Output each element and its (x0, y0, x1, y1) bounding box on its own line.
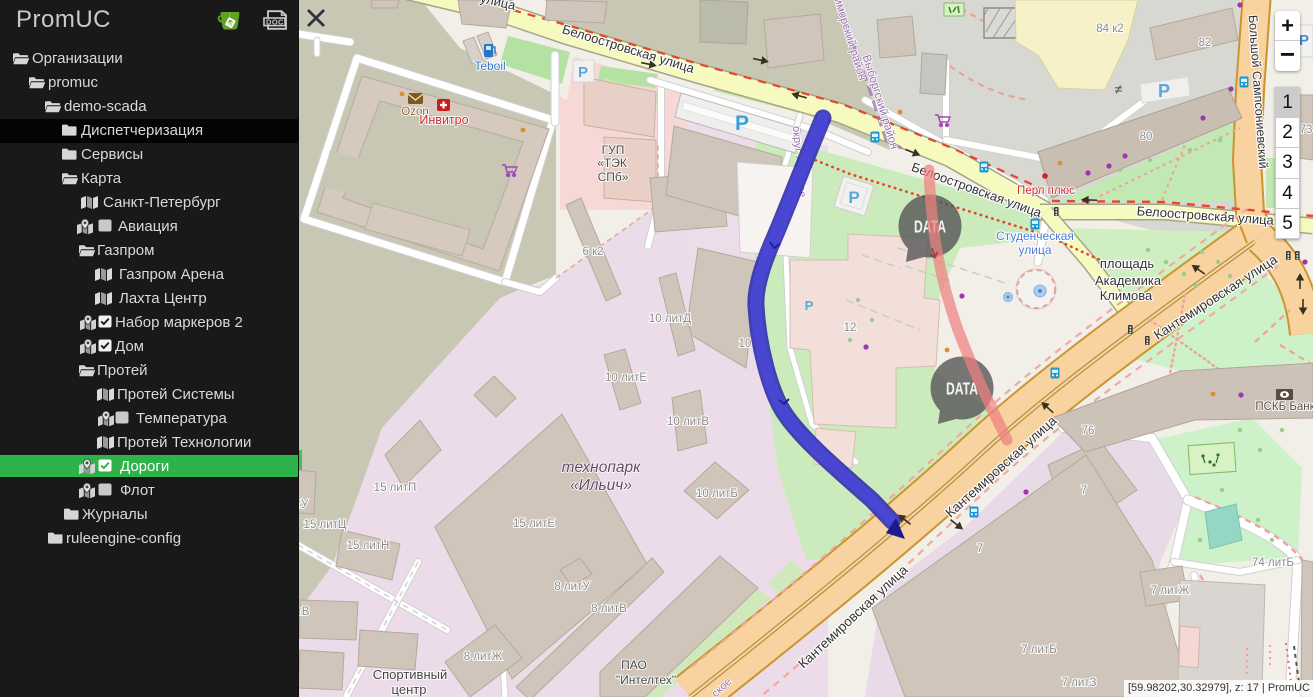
svg-text:82: 82 (1199, 37, 1212, 49)
svg-text:7: 7 (1081, 485, 1087, 497)
svg-text:СПб»: СПб» (598, 170, 629, 184)
svg-text:Климова: Климова (1100, 288, 1153, 303)
svg-text:"Интелтех": "Интелтех" (616, 673, 676, 687)
svg-text:площадь: площадь (1100, 256, 1155, 271)
svg-text:«ТЭК: «ТЭК (597, 156, 627, 170)
svg-text:15 литЦ: 15 литЦ (304, 519, 347, 531)
svg-text:центр: центр (392, 682, 427, 697)
svg-text:DOC: DOC (266, 17, 284, 26)
svg-text:ГУП: ГУП (602, 143, 625, 157)
svg-text:ПАО: ПАО (621, 658, 647, 672)
svg-text:8 литВ: 8 литВ (591, 603, 627, 615)
svg-text:DATA: DATA (946, 379, 978, 399)
svg-text:7 литЖ: 7 литЖ (1151, 585, 1190, 597)
svg-text:7 литЗ: 7 литЗ (1062, 677, 1097, 689)
svg-text:15 литН: 15 литН (347, 540, 390, 552)
svg-text:Студенческая: Студенческая (996, 229, 1074, 243)
svg-text:10: 10 (739, 338, 752, 350)
svg-text:7 литБ: 7 литБ (1021, 644, 1057, 656)
svg-text:P: P (735, 112, 749, 135)
svg-text:тВ: тВ (298, 606, 310, 618)
svg-text:10 литД: 10 литД (649, 313, 691, 325)
svg-text:P: P (805, 298, 814, 313)
svg-text:тУ: тУ (298, 499, 309, 511)
svg-text:P: P (1299, 32, 1309, 49)
svg-text:10 литВ: 10 литВ (667, 416, 709, 428)
svg-text:Спортивный: Спортивный (373, 667, 448, 682)
svg-text:8 литУ: 8 литУ (554, 581, 590, 593)
svg-text:Академика: Академика (1095, 273, 1162, 288)
svg-text:P: P (578, 64, 588, 81)
svg-text:Инвитро: Инвитро (419, 113, 468, 127)
svg-text:12: 12 (844, 322, 857, 334)
svg-text:улица: улица (1019, 243, 1052, 257)
svg-text:73: 73 (1300, 124, 1313, 136)
svg-text:«Ильич»: «Ильич» (570, 477, 632, 494)
svg-text:15 литП: 15 литП (374, 482, 417, 494)
svg-text:10 литБ: 10 литБ (696, 488, 738, 500)
svg-text:6 к2: 6 к2 (582, 246, 603, 258)
svg-text:76: 76 (1082, 425, 1095, 437)
svg-text:10 литЕ: 10 литЕ (605, 372, 647, 384)
svg-text:8 литЖ: 8 литЖ (464, 651, 503, 663)
svg-text:технопарк: технопарк (562, 459, 642, 476)
svg-text:Перл плюс: Перл плюс (1017, 185, 1075, 197)
svg-text:Teboil: Teboil (474, 59, 505, 73)
svg-text:80: 80 (1140, 131, 1153, 143)
svg-text:7: 7 (977, 543, 983, 555)
svg-text:P: P (1158, 81, 1170, 101)
svg-text:ПСКБ Банк: ПСКБ Банк (1255, 401, 1313, 413)
svg-text:P: P (848, 188, 859, 207)
svg-text:84 к2: 84 к2 (1096, 23, 1123, 35)
svg-text:15 литЕ: 15 литЕ (513, 518, 555, 530)
svg-text:74 литБ: 74 литБ (1252, 557, 1294, 569)
